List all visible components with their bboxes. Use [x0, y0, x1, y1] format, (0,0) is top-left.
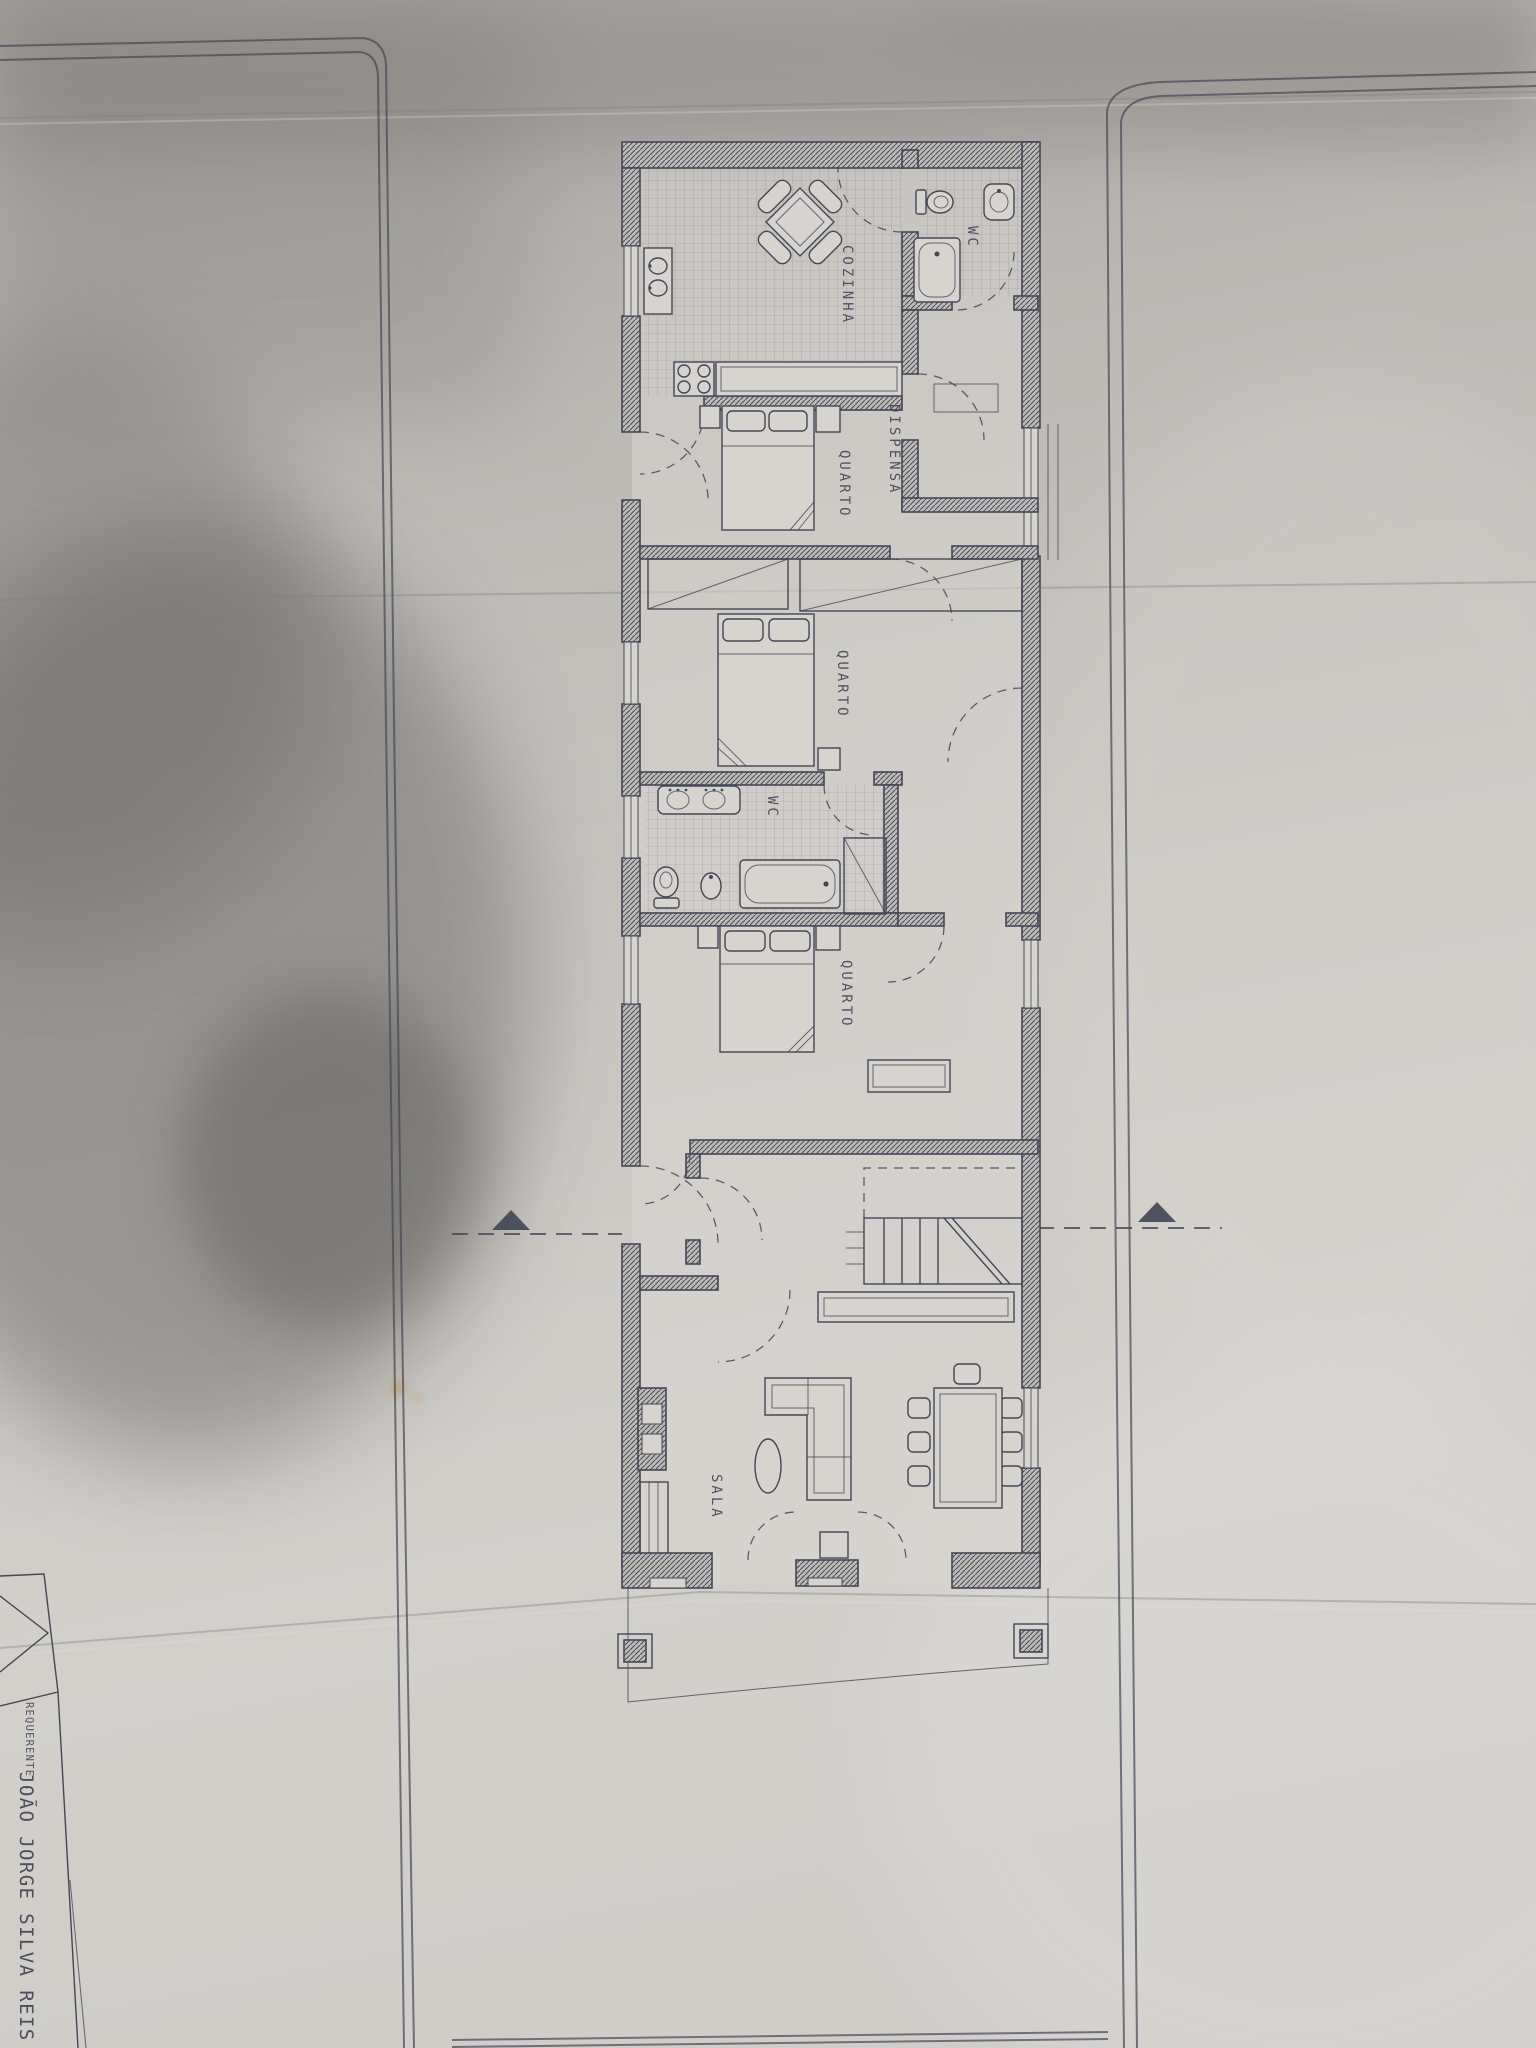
stove — [674, 362, 714, 396]
bedroom-1-label: QUARTO — [836, 450, 852, 519]
bidet-icon — [701, 873, 721, 899]
nightstand — [700, 406, 720, 428]
bathtub-icon — [740, 860, 840, 908]
double-vanity-icon — [658, 786, 740, 814]
dresser — [868, 1060, 950, 1092]
photographed-floor-plan-page: COZINHA WC DISPENSA — [0, 0, 1536, 2048]
coffee-table — [755, 1439, 781, 1493]
nightstand — [816, 406, 840, 432]
sideboard — [818, 1292, 1014, 1322]
window — [1024, 940, 1038, 1008]
floor-plan-photo: COZINHA WC DISPENSA — [0, 0, 1536, 2048]
nightstand — [698, 926, 718, 948]
toilet-icon — [654, 867, 679, 908]
pantry-label: DISPENSA — [886, 404, 902, 495]
window — [624, 796, 638, 858]
wc-top-label: WC — [964, 226, 980, 249]
kitchen-sink — [644, 248, 672, 314]
window — [1024, 428, 1038, 556]
fireplace — [638, 1388, 666, 1470]
bedroom-2-label: QUARTO — [834, 650, 850, 719]
window — [1024, 1388, 1038, 1468]
kitchen-counter — [716, 362, 902, 396]
nightstand — [818, 748, 840, 770]
kitchen-label: COZINHA — [839, 245, 855, 325]
requerente-name: JOÃO JORGE SILVA REIS — [15, 1772, 38, 2042]
bathtub-icon — [914, 238, 960, 302]
nightstand — [816, 926, 840, 950]
washbasin-icon — [984, 184, 1014, 220]
wc-main-label: WC — [764, 796, 780, 819]
living-label: SALA — [708, 1474, 724, 1520]
porch-column — [820, 1532, 848, 1558]
window — [624, 936, 638, 1004]
toilet-icon — [916, 190, 953, 214]
window — [624, 642, 638, 704]
window — [624, 246, 638, 316]
floor-plan: COZINHA WC DISPENSA — [618, 142, 1058, 1702]
bedroom-3-label: QUARTO — [838, 960, 854, 1029]
